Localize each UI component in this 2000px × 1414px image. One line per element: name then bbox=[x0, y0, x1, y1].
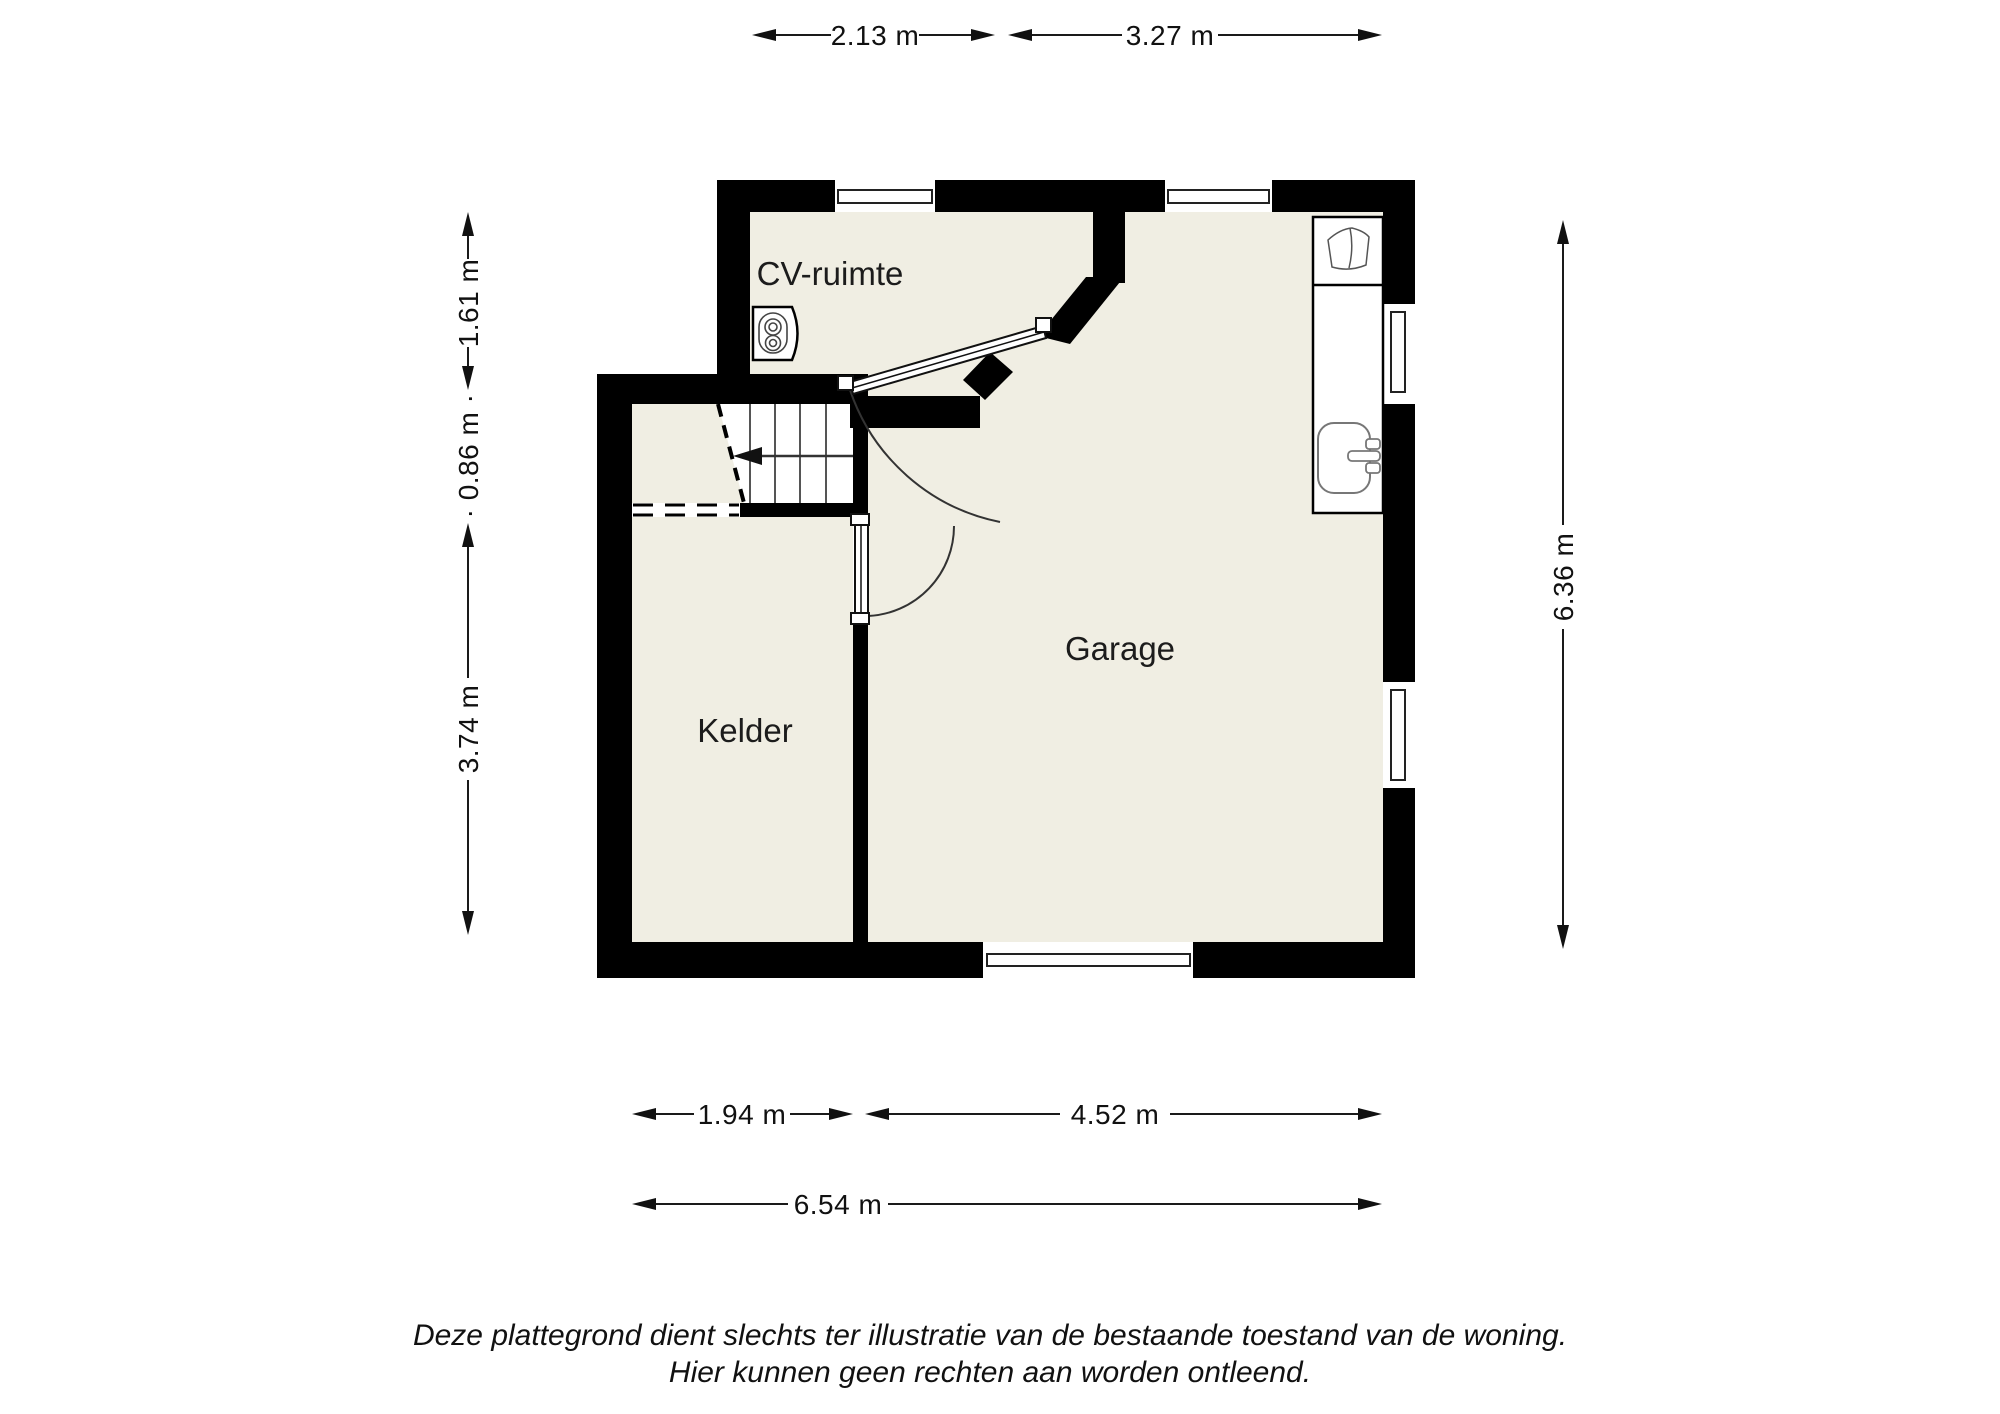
room-label-garage: Garage bbox=[1065, 630, 1175, 667]
wall-cv-bottom bbox=[597, 374, 868, 404]
wall-top bbox=[717, 180, 1415, 212]
wall-cv-door-stub bbox=[850, 396, 980, 428]
door-jamb bbox=[851, 514, 869, 525]
room-label-kelder: Kelder bbox=[697, 712, 792, 749]
dim-right-1: 6.36 m bbox=[1548, 533, 1579, 622]
wall-stairs-bottom bbox=[740, 503, 868, 517]
boiler-icon bbox=[753, 307, 798, 360]
room-label-cv-ruimte: CV-ruimte bbox=[757, 255, 904, 292]
dim-bottom-2: 4.52 m bbox=[1071, 1099, 1160, 1130]
floorplan-svg: CV-ruimte Garage Kelder bbox=[0, 0, 2000, 1414]
dim-bottom-total: 6.54 m bbox=[794, 1189, 883, 1220]
window-icon bbox=[1391, 312, 1405, 392]
window-icon bbox=[838, 190, 932, 203]
dim-left-1: 1.61 m bbox=[453, 259, 484, 348]
disclaimer-line-2: Hier kunnen geen rechten aan worden ontl… bbox=[669, 1356, 1311, 1389]
laundry-basin-icon bbox=[1328, 228, 1369, 269]
door-jamb bbox=[838, 376, 853, 390]
window-icon bbox=[1391, 690, 1405, 780]
dim-left-3: 3.74 m bbox=[453, 685, 484, 774]
disclaimer-line-1: Deze plattegrond dient slechts ter illus… bbox=[413, 1319, 1567, 1352]
floorplan-page: CV-ruimte Garage Kelder bbox=[0, 0, 2000, 1414]
dim-top-1: 2.13 m bbox=[831, 20, 920, 51]
wall-west bbox=[597, 374, 632, 978]
counter-unit bbox=[1313, 217, 1383, 513]
dim-bottom-1: 1.94 m bbox=[698, 1099, 787, 1130]
wall-kelder-garage bbox=[853, 404, 868, 942]
door-jamb bbox=[851, 613, 869, 624]
wall-cv-left bbox=[717, 180, 750, 404]
dim-top-2: 3.27 m bbox=[1126, 20, 1215, 51]
garage-door-icon bbox=[987, 954, 1190, 966]
dim-left-2: · 0.86 m · bbox=[453, 394, 484, 519]
door-jamb bbox=[1036, 318, 1051, 332]
wall-cv-east bbox=[1093, 212, 1125, 283]
window-icon bbox=[1168, 190, 1269, 203]
wall-east bbox=[1383, 180, 1415, 978]
